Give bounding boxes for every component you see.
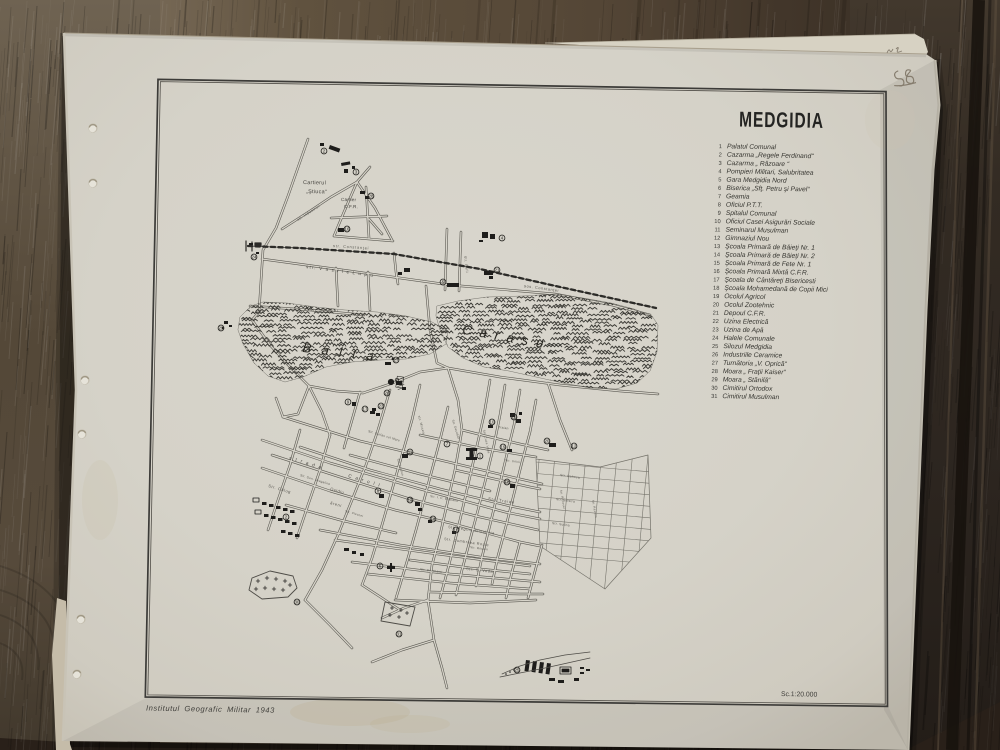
svg-text:13: 13: [714, 244, 720, 250]
svg-text:24: 24: [252, 255, 257, 260]
svg-text:22: 22: [712, 319, 718, 325]
svg-text:Seminarul Musulman: Seminarul Musulman: [725, 227, 788, 235]
svg-text:15: 15: [454, 528, 459, 533]
svg-text:Industriile Ceramice: Industriile Ceramice: [723, 351, 782, 359]
svg-text:Uzina de Apă: Uzina de Apă: [724, 327, 764, 335]
svg-text:27: 27: [712, 361, 718, 367]
svg-text:17: 17: [713, 277, 719, 283]
svg-text:Silozul Medgidia: Silozul Medgidia: [723, 343, 772, 351]
svg-text:13: 13: [408, 498, 413, 503]
svg-text:Cimitirul Musulman: Cimitirul Musulman: [722, 393, 779, 401]
svg-text:11: 11: [715, 227, 721, 233]
svg-text:MEDGIDIA: MEDGIDIA: [739, 107, 824, 133]
svg-text:27: 27: [394, 358, 399, 363]
svg-text:Geamia: Geamia: [726, 193, 750, 200]
svg-text:17: 17: [363, 407, 368, 412]
svg-text:10: 10: [490, 420, 495, 425]
svg-text:Cartier: Cartier: [341, 197, 357, 202]
svg-text:Ocolul Zootehnic: Ocolul Zootehnic: [724, 302, 775, 310]
svg-text:25: 25: [712, 344, 718, 350]
svg-text:2: 2: [719, 152, 722, 158]
svg-text:28: 28: [711, 369, 717, 375]
svg-text:16: 16: [713, 269, 719, 275]
svg-text:4: 4: [718, 169, 721, 175]
svg-text:Cazarma „ Răzoare “: Cazarma „ Răzoare “: [727, 160, 790, 168]
svg-text:29: 29: [711, 377, 717, 383]
svg-text:Gimnaziul Nou: Gimnaziul Nou: [725, 235, 769, 243]
svg-text:18: 18: [505, 480, 510, 485]
svg-text:8: 8: [718, 202, 721, 208]
svg-text:25: 25: [515, 668, 520, 673]
svg-text:23: 23: [379, 404, 384, 409]
svg-text:12: 12: [572, 444, 577, 449]
svg-text:Moara „ Stănilă“: Moara „ Stănilă“: [723, 376, 771, 384]
svg-text:„Ştiuca“: „Ştiuca“: [306, 189, 327, 195]
svg-text:19: 19: [713, 294, 719, 300]
svg-text:Halele Comunale: Halele Comunale: [723, 335, 775, 343]
svg-text:3: 3: [718, 161, 721, 167]
svg-text:31: 31: [711, 394, 717, 400]
svg-text:Depoul C.F.R.: Depoul C.F.R.: [724, 310, 766, 318]
svg-text:7: 7: [718, 194, 721, 200]
svg-text:24: 24: [712, 336, 718, 342]
svg-text:10: 10: [714, 219, 720, 225]
svg-text:Cimitirul Ortodox: Cimitirul Ortodox: [723, 385, 774, 393]
svg-text:30: 30: [711, 386, 717, 392]
svg-text:14: 14: [431, 517, 436, 522]
svg-text:15: 15: [713, 261, 719, 267]
svg-text:Turnătoria „V. Oprică“: Turnătoria „V. Oprică“: [723, 360, 788, 368]
svg-text:Palatul Comunal: Palatul Comunal: [727, 143, 777, 151]
svg-text:Moara „ Fraţii Kaiser“: Moara „ Fraţii Kaiser“: [723, 368, 787, 376]
svg-text:Oficiul P.T.T.: Oficiul P.T.T.: [726, 202, 763, 210]
svg-text:29: 29: [219, 326, 224, 331]
svg-text:str. Andrei: str. Andrei: [310, 307, 339, 313]
svg-text:20: 20: [713, 302, 719, 308]
svg-text:1: 1: [719, 144, 722, 150]
svg-text:12: 12: [714, 236, 720, 242]
svg-text:Spitalul Comunal: Spitalul Comunal: [726, 210, 777, 218]
svg-text:18: 18: [713, 286, 719, 292]
svg-text:Gara Medgidia Nord: Gara Medgidia Nord: [726, 177, 787, 185]
svg-text:22: 22: [512, 415, 517, 420]
svg-text:26: 26: [385, 391, 390, 396]
svg-text:20: 20: [545, 439, 550, 444]
svg-text:C.F.R.: C.F.R.: [344, 204, 358, 209]
svg-text:9: 9: [718, 211, 721, 217]
svg-text:26: 26: [712, 352, 718, 358]
svg-text:30: 30: [295, 600, 300, 605]
svg-text:23: 23: [712, 327, 718, 333]
svg-text:14: 14: [714, 252, 720, 258]
svg-text:Uzina Electrică: Uzina Electrică: [724, 318, 769, 326]
svg-text:5: 5: [718, 177, 721, 183]
svg-text:11: 11: [408, 450, 413, 455]
svg-text:6: 6: [718, 186, 721, 192]
svg-text:28: 28: [369, 194, 374, 199]
svg-text:19: 19: [501, 445, 506, 450]
svg-text:21: 21: [713, 311, 719, 317]
svg-text:Ocolul Agricol: Ocolul Agricol: [724, 293, 766, 301]
svg-text:Cartierul: Cartierul: [303, 180, 326, 186]
svg-text:16: 16: [345, 227, 350, 232]
svg-text:21: 21: [495, 268, 500, 273]
svg-text:Sc.1:20.000: Sc.1:20.000: [781, 691, 818, 699]
svg-text:31: 31: [397, 632, 402, 637]
